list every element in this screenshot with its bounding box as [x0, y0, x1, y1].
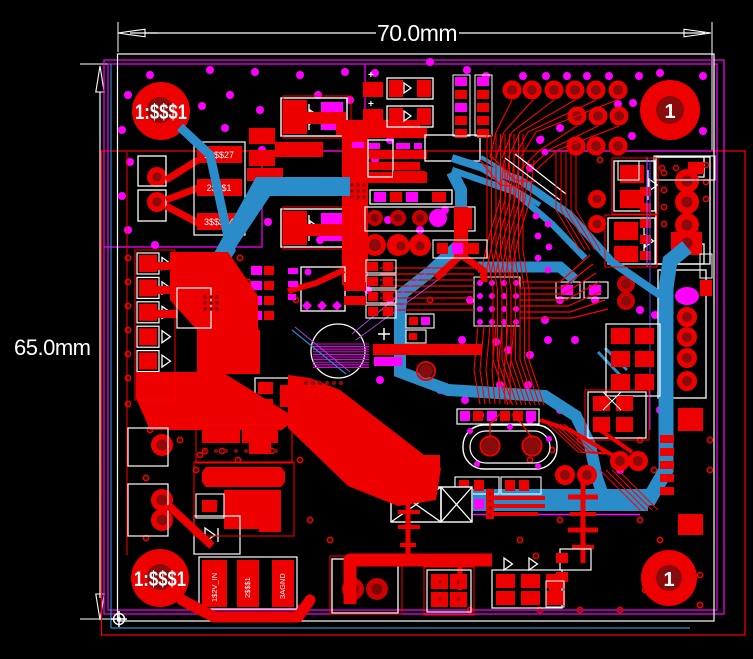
svg-text:70.0mm: 70.0mm: [377, 20, 457, 46]
svg-text:1:$$$1: 1:$$$1: [134, 568, 186, 591]
svg-text:1: 1: [664, 101, 675, 123]
svg-text:3AGND: 3AGND: [278, 573, 287, 599]
svg-text:65.0mm: 65.0mm: [14, 335, 90, 360]
svg-text:1:$$$1: 1:$$$1: [135, 101, 187, 124]
svg-text:+: +: [368, 99, 374, 110]
svg-text:2$$$1: 2$$$1: [243, 577, 252, 598]
svg-text:1: 1: [663, 569, 674, 591]
svg-text:+: +: [368, 70, 374, 81]
svg-text:1$2V_IN: 1$2V_IN: [210, 573, 219, 602]
